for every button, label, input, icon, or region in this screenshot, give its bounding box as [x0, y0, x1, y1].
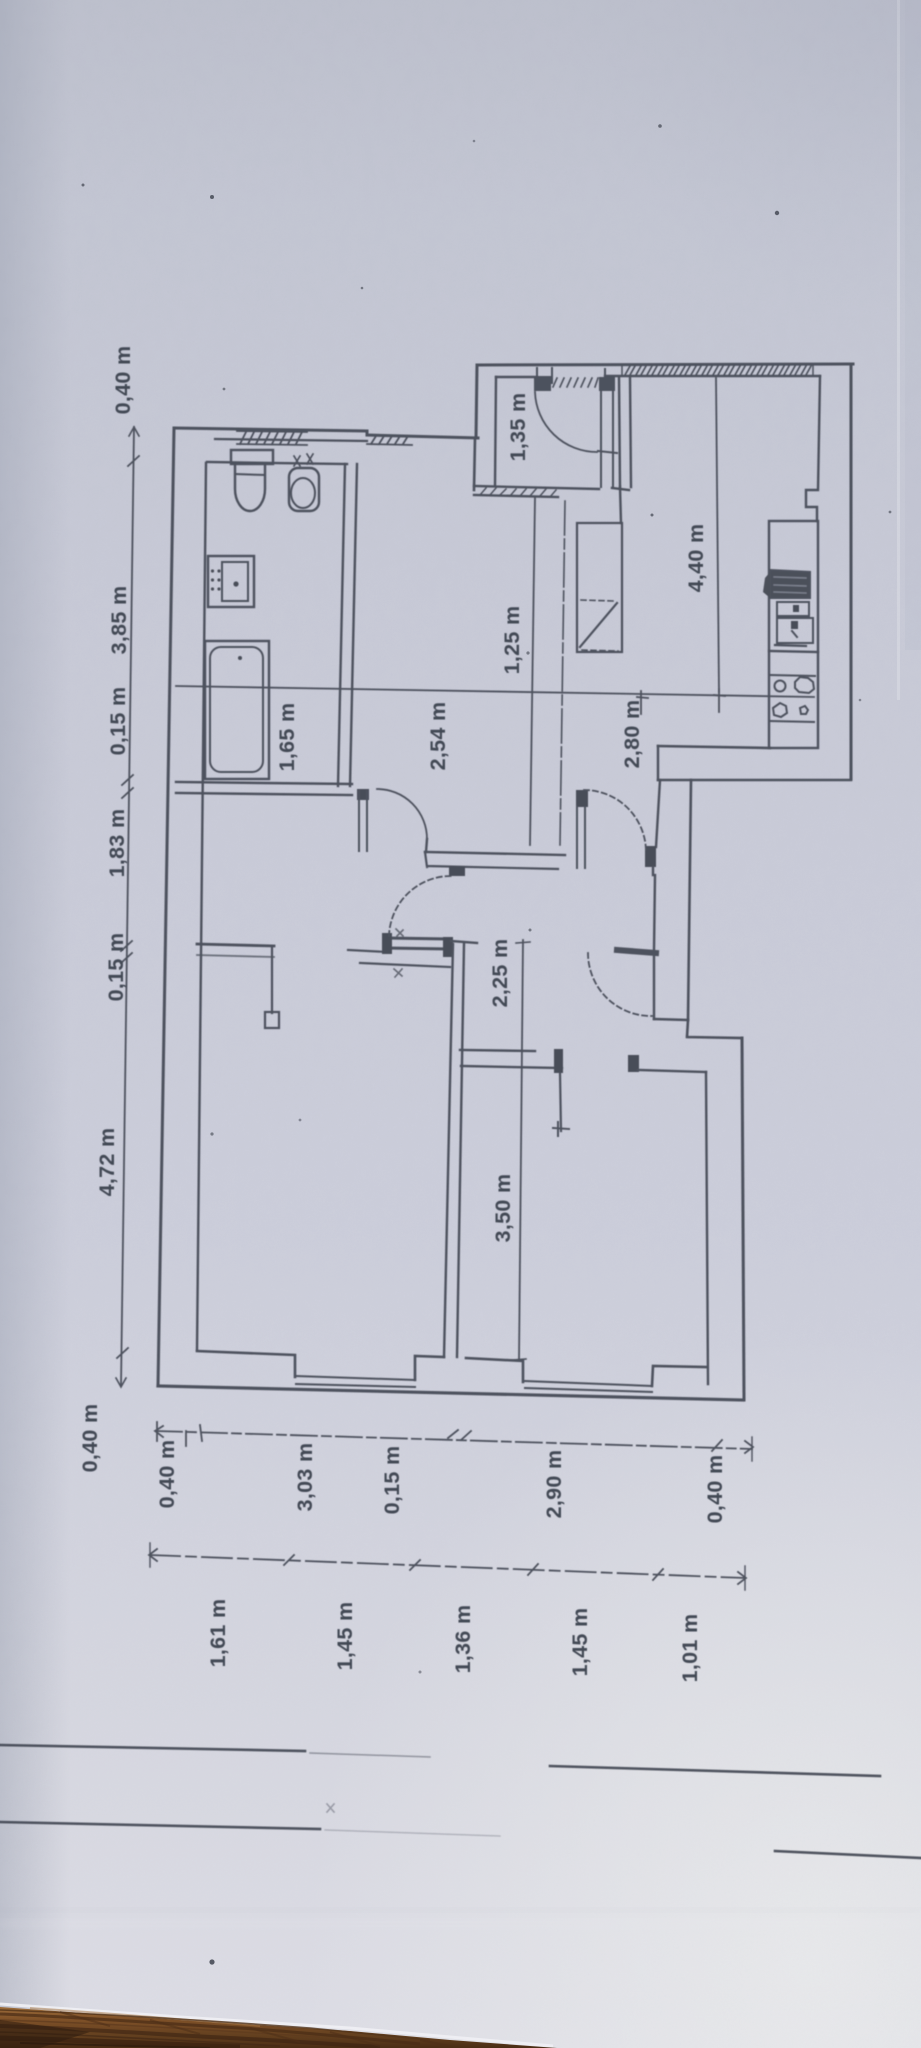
svg-text:0,40 m: 0,40 m: [78, 1404, 102, 1473]
svg-text:2,25 m: 2,25 m: [488, 939, 512, 1008]
svg-text:0,40 m: 0,40 m: [111, 346, 135, 415]
svg-text:4,72 m: 4,72 m: [95, 1128, 119, 1197]
svg-text:1,36 m: 1,36 m: [451, 1605, 475, 1674]
svg-text:0,15 m: 0,15 m: [380, 1446, 404, 1515]
svg-text:2,90 m: 2,90 m: [542, 1450, 566, 1519]
svg-text:2,80 m: 2,80 m: [620, 700, 644, 769]
svg-text:4,40 m: 4,40 m: [684, 524, 708, 593]
svg-text:3,85 m: 3,85 m: [107, 586, 131, 655]
svg-text:1,35 m: 1,35 m: [506, 393, 530, 462]
svg-text:0,15 m: 0,15 m: [104, 933, 128, 1002]
svg-text:1,01 m: 1,01 m: [678, 1614, 702, 1683]
svg-text:2,54 m: 2,54 m: [426, 702, 450, 771]
svg-text:1,83 m: 1,83 m: [105, 809, 129, 878]
svg-text:1,45 m: 1,45 m: [333, 1602, 357, 1671]
svg-text:1,65 m: 1,65 m: [275, 703, 299, 772]
svg-text:0,40 m: 0,40 m: [155, 1440, 179, 1509]
svg-text:1,45 m: 1,45 m: [568, 1608, 592, 1677]
svg-text:0,40 m: 0,40 m: [703, 1455, 727, 1524]
svg-text:0,15 m: 0,15 m: [106, 687, 130, 756]
svg-text:3,03 m: 3,03 m: [293, 1443, 317, 1512]
svg-text:1,61 m: 1,61 m: [206, 1599, 230, 1668]
svg-text:3,50 m: 3,50 m: [491, 1174, 515, 1243]
svg-text:1,25 m: 1,25 m: [500, 606, 524, 675]
